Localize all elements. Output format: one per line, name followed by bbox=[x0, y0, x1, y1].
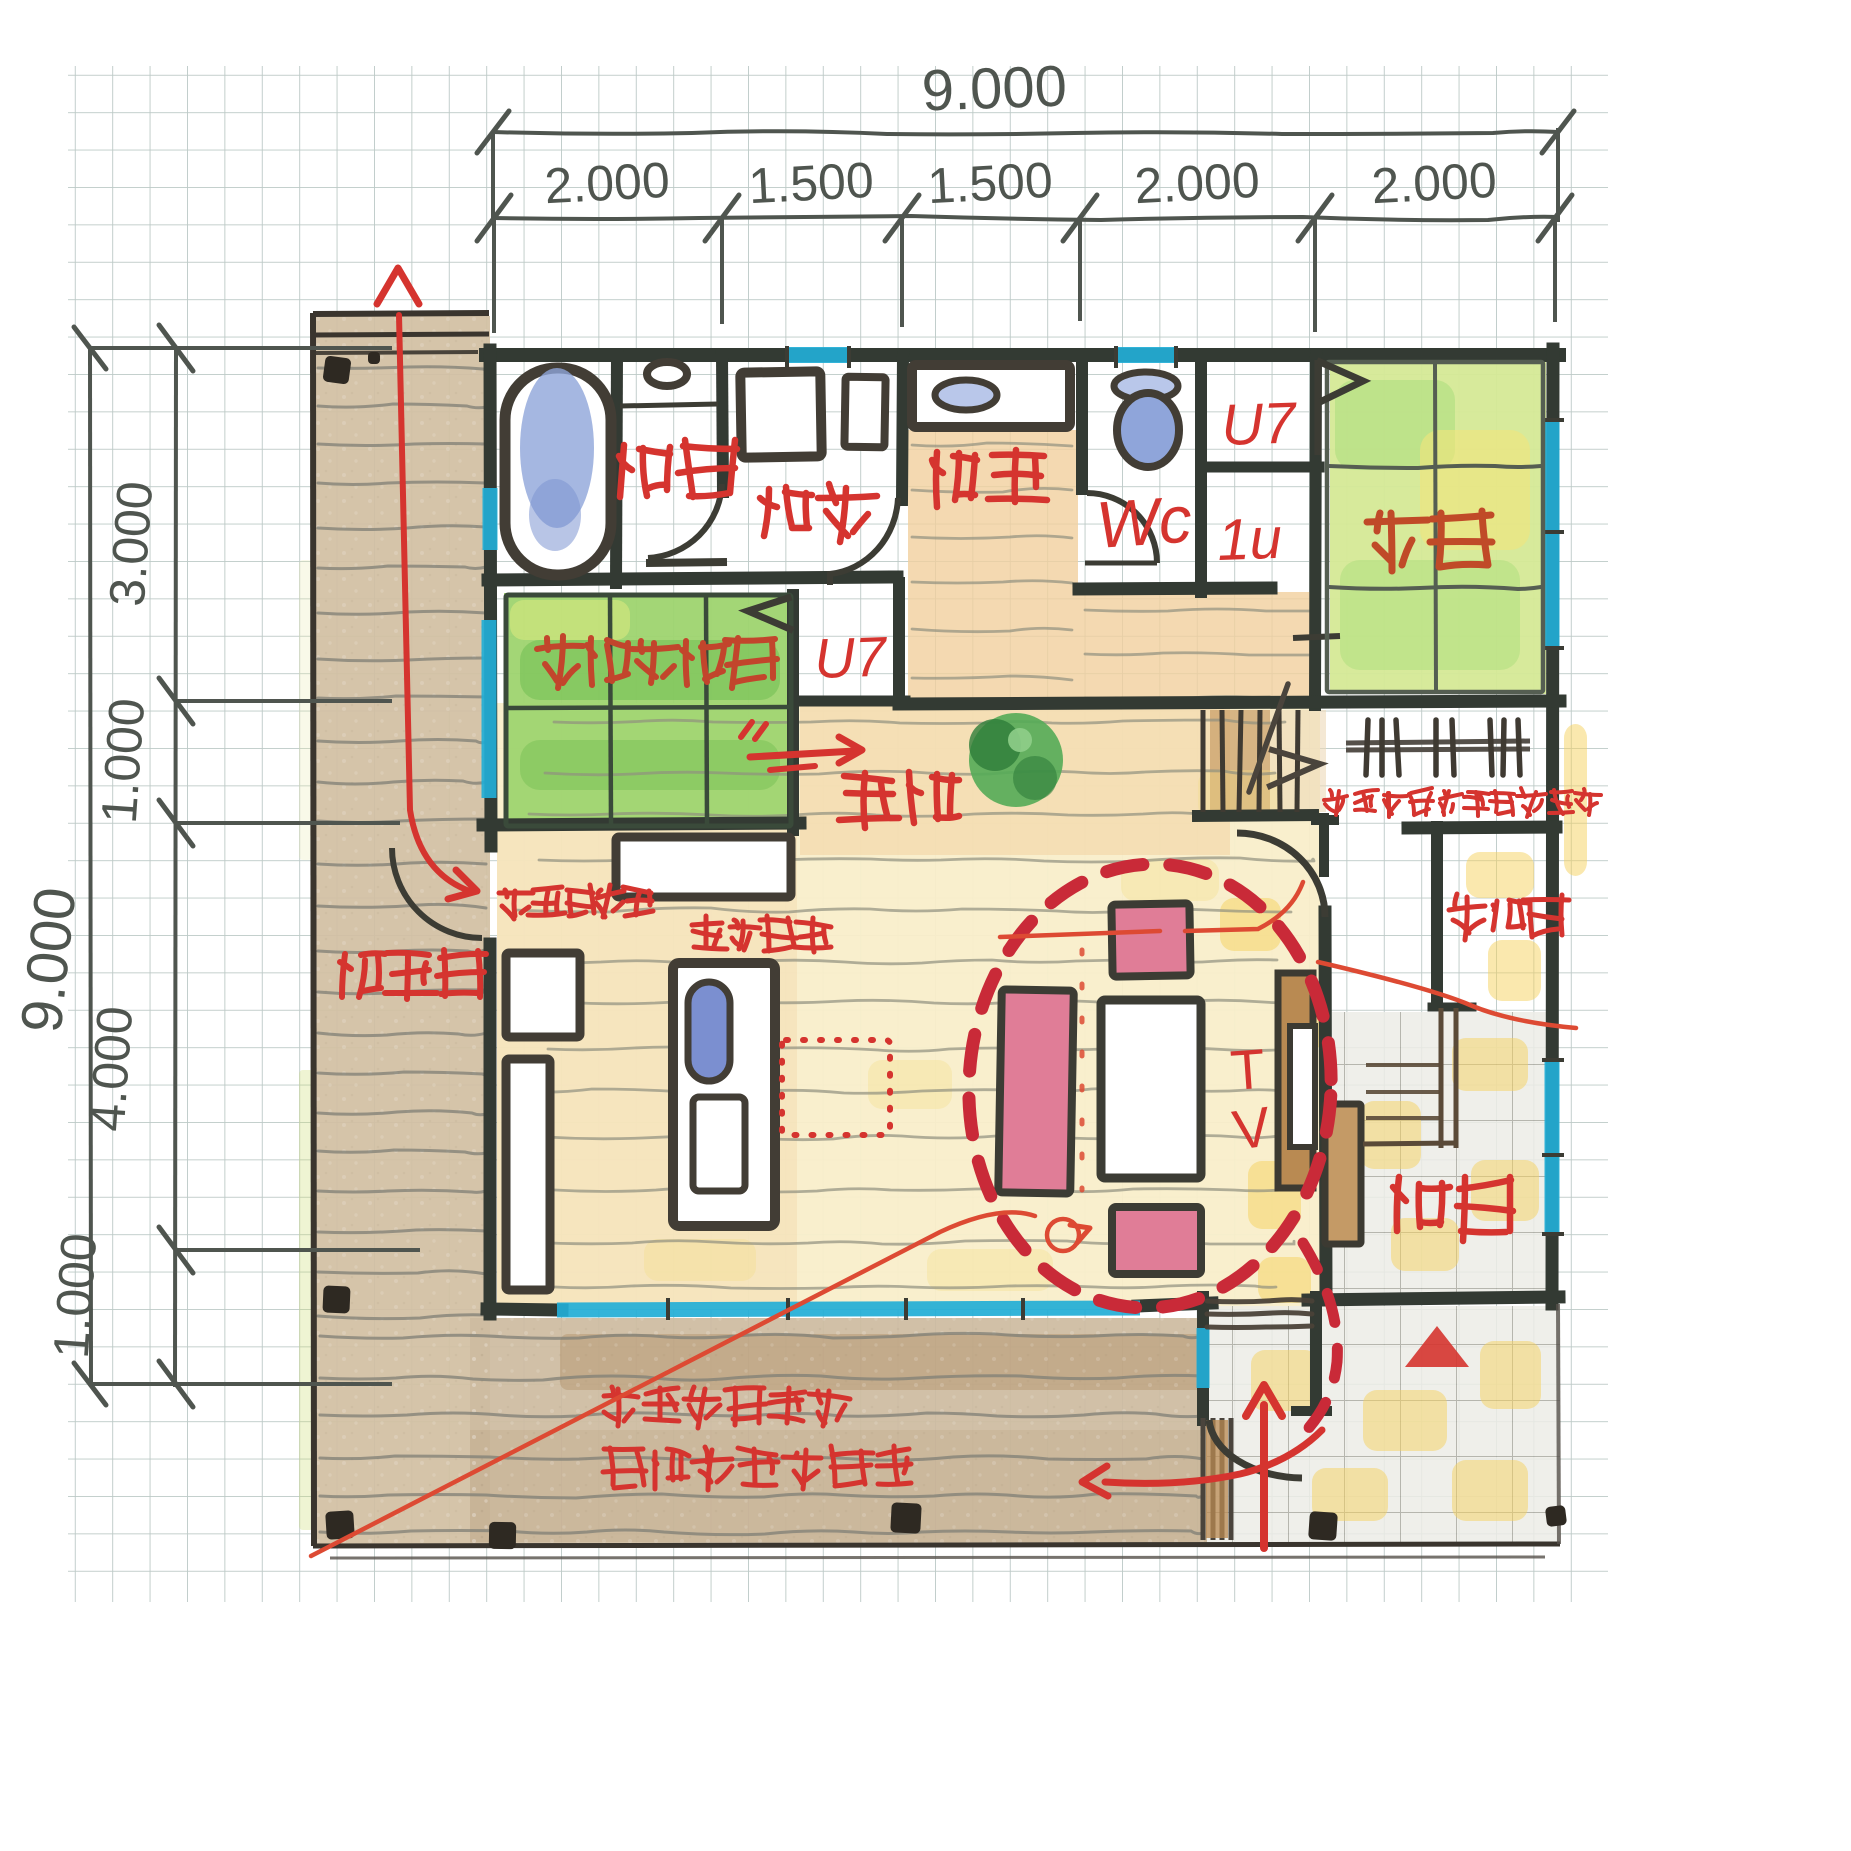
svg-text:1u: 1u bbox=[1216, 506, 1283, 573]
svg-text:1.000: 1.000 bbox=[43, 1231, 108, 1360]
svg-text:2.000: 2.000 bbox=[1133, 152, 1261, 214]
svg-text:9.000: 9.000 bbox=[921, 53, 1068, 123]
svg-text:U7: U7 bbox=[1220, 390, 1299, 458]
svg-text:1.000: 1.000 bbox=[91, 696, 156, 825]
svg-text:2.000: 2.000 bbox=[1370, 152, 1498, 214]
svg-text:1.500: 1.500 bbox=[926, 152, 1054, 214]
svg-text:T: T bbox=[1228, 1037, 1267, 1102]
svg-text:4.000: 4.000 bbox=[79, 1004, 144, 1133]
svg-text:1.500: 1.500 bbox=[747, 152, 875, 214]
svg-text:3.000: 3.000 bbox=[99, 479, 164, 608]
svg-text:U7: U7 bbox=[813, 624, 889, 690]
svg-text:Wc: Wc bbox=[1094, 481, 1194, 561]
svg-text:2.000: 2.000 bbox=[543, 152, 671, 214]
